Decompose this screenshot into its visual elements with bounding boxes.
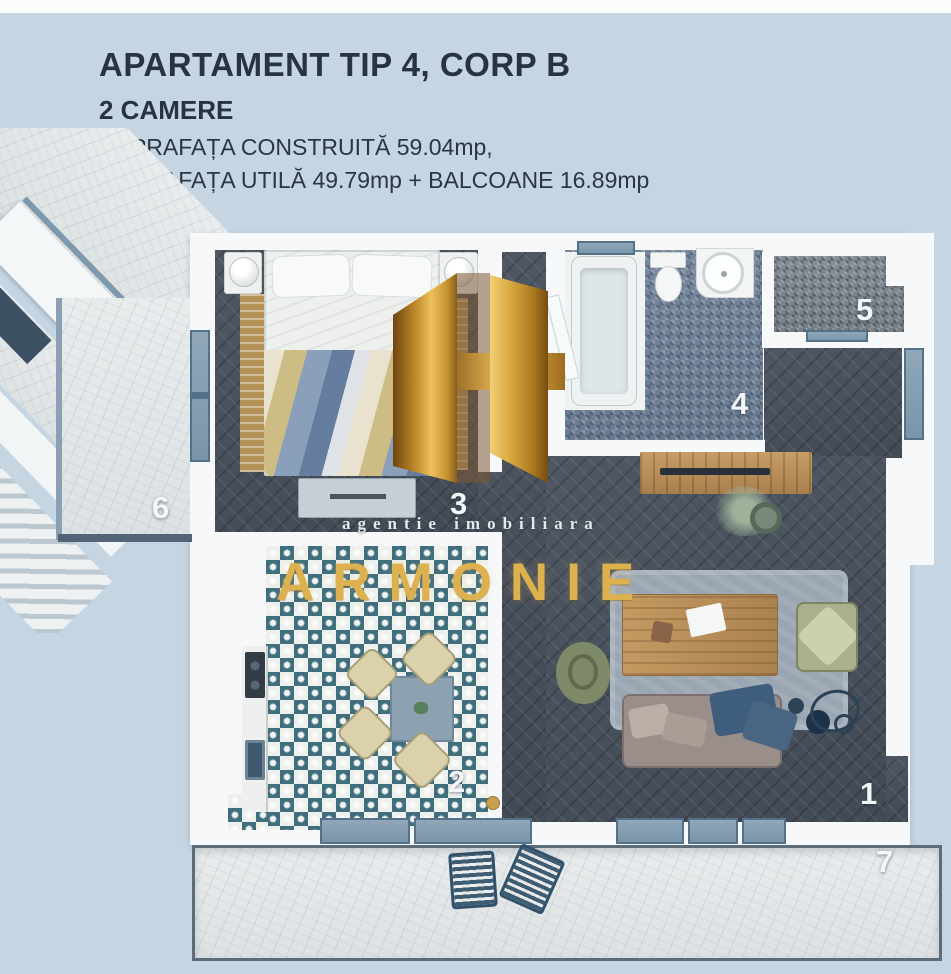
bathtub-basin xyxy=(580,268,628,394)
top-margin-strip xyxy=(0,0,951,13)
kitchen-terrace-window-2 xyxy=(414,818,532,844)
balcony-left-glass xyxy=(56,298,62,540)
room-label-terrace: 7 xyxy=(876,846,893,877)
sink-drain xyxy=(721,271,727,277)
agency-logo-h-icon xyxy=(381,262,581,492)
room-label-kitchen: 2 xyxy=(448,766,465,797)
table-tray xyxy=(650,620,673,643)
floor-plan-page: APARTAMENT TIP 4, CORP B 2 CAMERE SUPRAF… xyxy=(0,0,951,974)
kitchen-sink xyxy=(245,740,265,780)
bathroom-window xyxy=(577,241,635,255)
pillow-left xyxy=(271,254,350,299)
gold-vase xyxy=(486,796,500,810)
room-label-bathroom: 4 xyxy=(731,388,748,419)
kitchen-table-plant xyxy=(414,702,428,714)
kitchen-terrace-window-1 xyxy=(320,818,410,844)
balcony-left-glass-bottom xyxy=(58,534,192,542)
cooktop xyxy=(245,652,265,698)
dresser-handle xyxy=(330,494,386,499)
toilet-bowl xyxy=(655,266,682,302)
agency-brand-name: ARMONIE xyxy=(276,552,652,613)
lounge-chair-seat xyxy=(568,654,598,690)
armchair-cushion xyxy=(797,605,858,667)
pouf-small xyxy=(788,698,804,714)
balcony-top-door-window xyxy=(806,330,868,342)
living-right-window xyxy=(904,348,924,440)
living-terrace-window-3 xyxy=(742,818,786,844)
living-terrace-window-1 xyxy=(616,818,684,844)
bag-handle xyxy=(834,714,854,734)
page-title: APARTAMENT TIP 4, CORP B xyxy=(99,46,571,84)
bedroom-balcony-window-mullion xyxy=(190,392,210,399)
room-label-living: 1 xyxy=(860,778,877,809)
armchair xyxy=(796,602,858,672)
balcony-top-left-wall xyxy=(762,252,774,336)
room-label-balcony-top: 5 xyxy=(856,294,873,325)
terrace-floor xyxy=(192,845,942,961)
room-label-balcony-left: 6 xyxy=(152,492,169,523)
plant-pot xyxy=(750,502,782,534)
balcony-top-floor xyxy=(772,256,904,334)
balcony-left-floor xyxy=(62,298,190,538)
tv xyxy=(660,468,770,475)
living-terrace-window-2 xyxy=(688,818,738,844)
agency-tagline: agentie imobiliara xyxy=(342,514,600,534)
bedside-rug-left xyxy=(240,294,266,472)
living-floor-step xyxy=(886,756,908,822)
terrace-chair-1 xyxy=(448,850,498,909)
balcony-top-notch xyxy=(886,254,906,286)
bedside-lamp-left xyxy=(229,257,259,287)
living-floor-upper xyxy=(764,348,902,458)
rooms-subtitle: 2 CAMERE xyxy=(99,95,233,126)
